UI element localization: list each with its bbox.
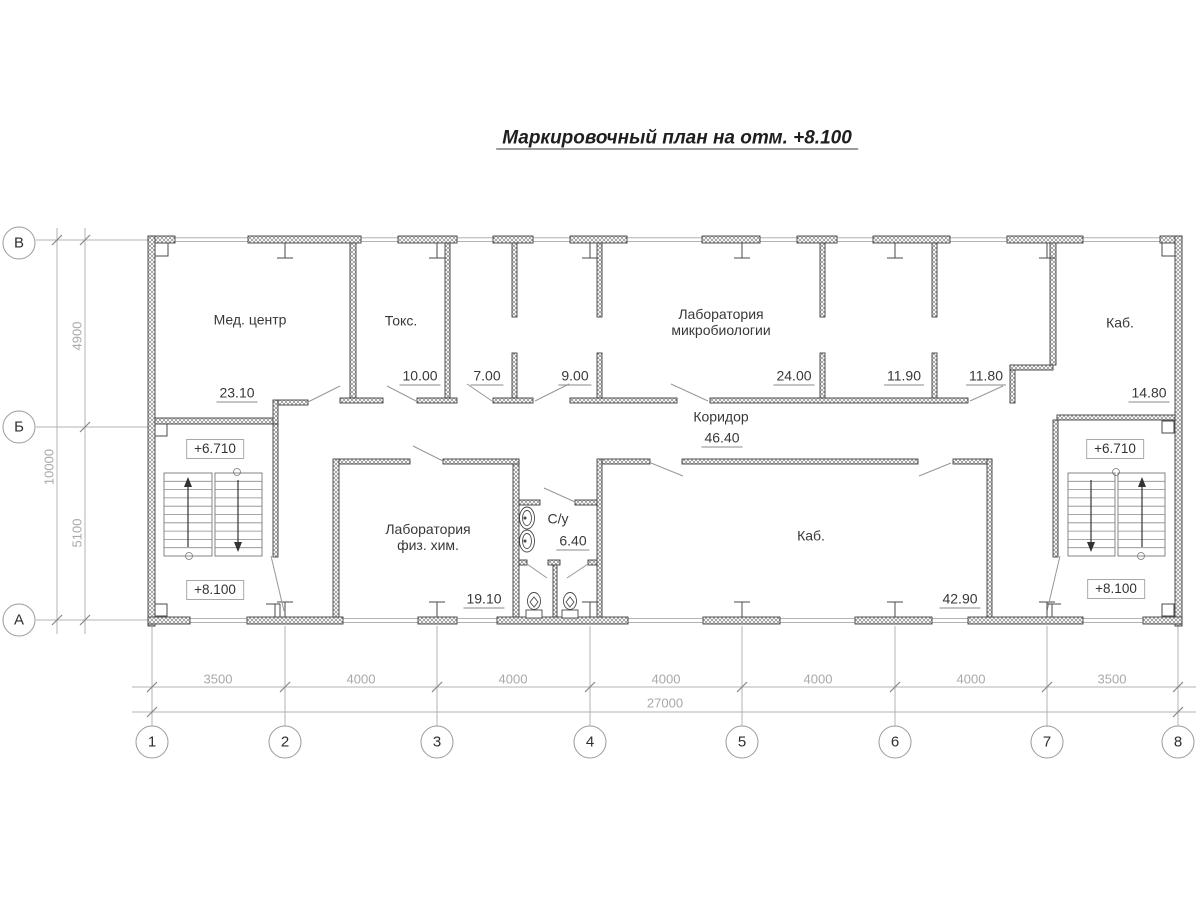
axis-bubble-v: В [14, 236, 24, 251]
room-area-corridor: 46.40 [701, 431, 742, 448]
room-area-phys-chem: 19.10 [463, 592, 504, 609]
floor-plan-page: { "title": "Маркировочный план на отм. +… [0, 0, 1200, 900]
axis-bubble-b: Б [14, 420, 24, 435]
room-name-office-center: Каб. [797, 529, 825, 544]
room-area-sanitary: 6.40 [556, 534, 589, 551]
outer-walls [148, 236, 1182, 626]
room-name-microbiology: Лаборатория микробиологии [671, 306, 770, 338]
axis-bubble-8: 8 [1174, 735, 1182, 750]
room-area-11-90: 11.90 [884, 369, 924, 386]
room-area-med-center: 23.10 [216, 386, 257, 403]
dim-total-left: 10000 [42, 449, 57, 485]
dim-segment: 4000 [957, 672, 986, 687]
dim-segment: 3500 [204, 672, 233, 687]
axis-grid [36, 228, 1196, 726]
column-marks [155, 243, 1175, 617]
room-area-microbiology: 24.00 [773, 369, 814, 386]
axis-bubble-1: 1 [148, 735, 156, 750]
room-name-line: микробиологии [671, 322, 770, 338]
room-name-toxicology: Токс. [385, 314, 417, 329]
room-name-med-center: Мед. центр [214, 313, 287, 328]
room-name-office-right: Каб. [1106, 316, 1134, 331]
level-mark-right-upper: +6.710 [1086, 439, 1144, 459]
level-mark-left-upper: +6.710 [186, 439, 244, 459]
axis-bubble-7: 7 [1043, 735, 1051, 750]
axis-bubble-4: 4 [586, 735, 594, 750]
dim-segment-left: 4900 [70, 322, 85, 351]
dim-segment: 4000 [347, 672, 376, 687]
room-name-sanitary: С/у [548, 512, 569, 527]
dim-segment: 3500 [1098, 672, 1127, 687]
door-leaves [271, 384, 1060, 611]
axis-bubble-3: 3 [433, 735, 441, 750]
sink-icon [520, 507, 535, 552]
room-area-toxicology: 10.00 [399, 369, 440, 386]
stairs-left [164, 469, 262, 560]
level-mark-right-lower: +8.100 [1087, 579, 1145, 599]
axis-bubble-5: 5 [738, 735, 746, 750]
dim-total-bottom: 27000 [647, 696, 683, 711]
dim-segment-left: 5100 [70, 519, 85, 548]
toilet-icon [526, 593, 578, 619]
room-name-line: Лаборатория [678, 306, 763, 322]
stairs-right [1068, 469, 1165, 560]
room-area-7: 7.00 [470, 369, 503, 386]
dim-segment: 4000 [499, 672, 528, 687]
dim-segment: 4000 [804, 672, 833, 687]
dimension-ticks [52, 235, 1183, 717]
room-area-office-center: 42.90 [939, 592, 980, 609]
level-mark-left-lower: +8.100 [186, 580, 244, 600]
dim-segment: 4000 [652, 672, 681, 687]
interior-walls [155, 243, 1175, 617]
axis-bubble-6: 6 [891, 735, 899, 750]
room-area-11-80: 11.80 [966, 369, 1006, 386]
room-area-9: 9.00 [558, 369, 591, 386]
room-name-corridor: Коридор [693, 410, 748, 425]
room-area-office-right: 14.80 [1128, 386, 1169, 403]
axis-bubble-2: 2 [281, 735, 289, 750]
room-name-phys-chem: Лаборатория физ. хим. [385, 521, 470, 553]
drawing-title: Маркировочный план на отм. +8.100 [496, 131, 858, 150]
window-lines [155, 238, 1175, 623]
room-name-line: Лаборатория [385, 521, 470, 537]
axis-bubble-a: А [14, 613, 24, 628]
room-name-line: физ. хим. [397, 537, 459, 553]
